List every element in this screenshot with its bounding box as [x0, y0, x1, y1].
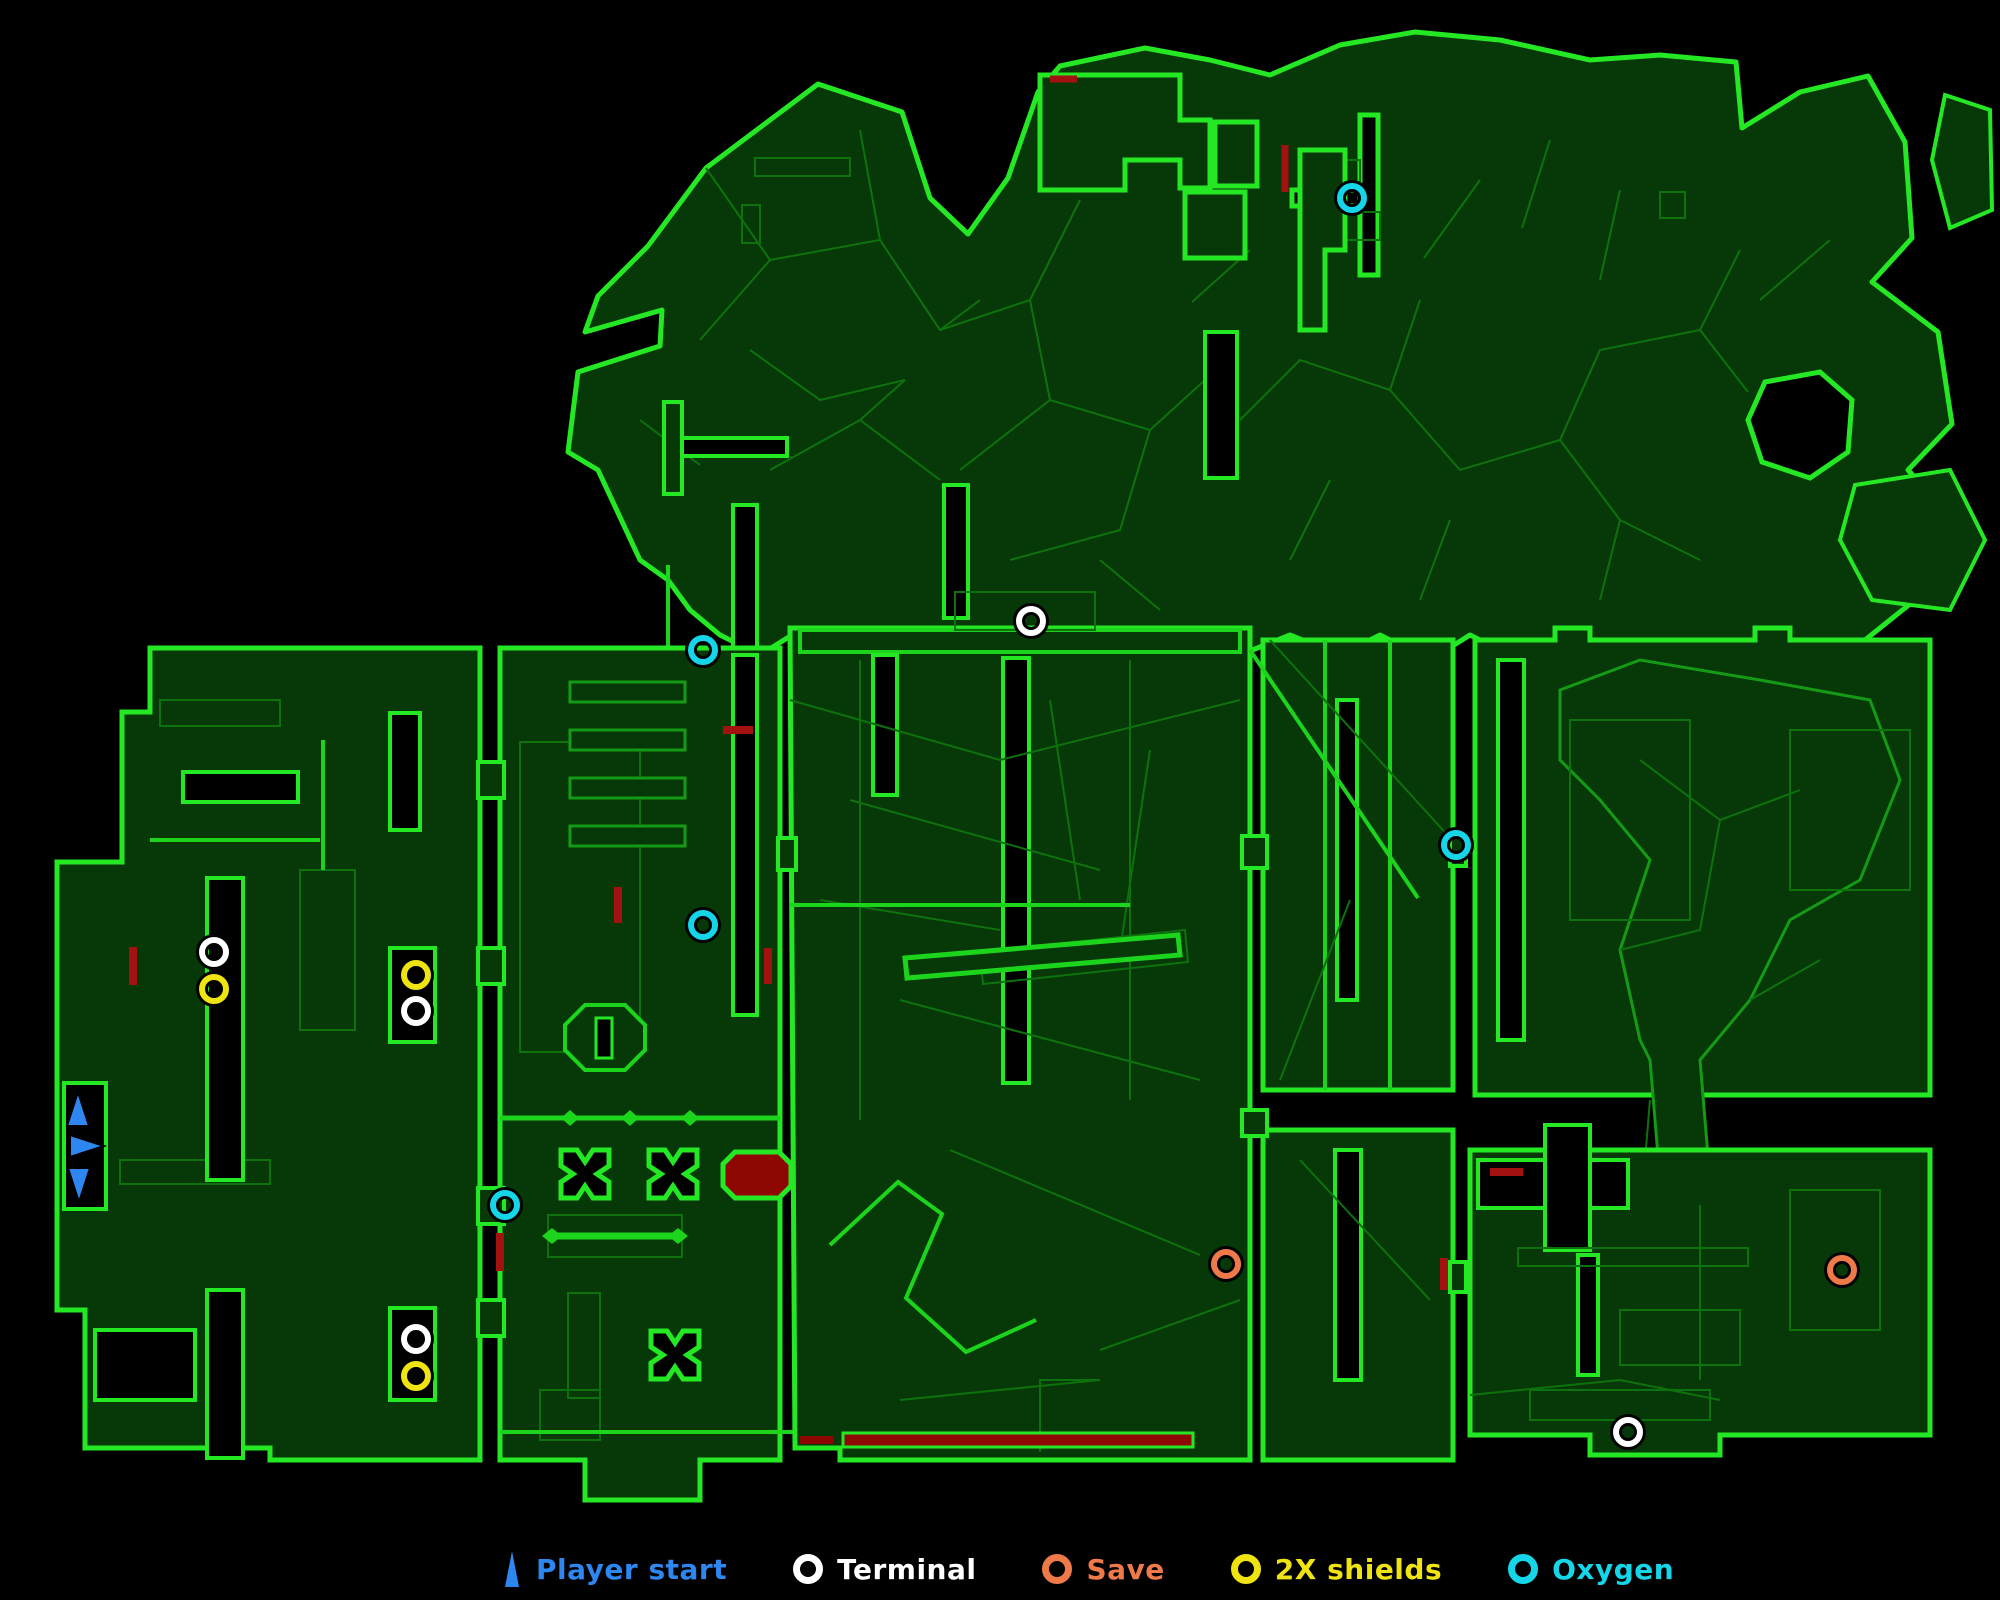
shaft — [733, 505, 757, 657]
rooms-right-bottom-block — [1444, 1125, 1930, 1455]
cave-fill — [568, 32, 1955, 700]
legend-item-player-start: Player start — [502, 1549, 727, 1589]
oxygen-icon — [1508, 1554, 1538, 1584]
shaft — [1578, 1255, 1598, 1375]
rooms-center-block — [723, 592, 1250, 1460]
cross-corridor-v — [1545, 1125, 1590, 1250]
shaft — [207, 1290, 243, 1458]
legend-item-oxygen: Oxygen — [1508, 1553, 1674, 1586]
shaft — [733, 655, 757, 1015]
rooms-left-block — [57, 648, 480, 1460]
save-icon — [1042, 1554, 1072, 1584]
cave-blob — [1932, 95, 1992, 228]
pillar — [183, 772, 298, 802]
shaft — [1335, 1150, 1361, 1380]
legend-bar: Player startTerminalSave2X shieldsOxygen… — [0, 1538, 2000, 1600]
legend-item-shields: 2X shields — [1231, 1553, 1442, 1586]
shaft — [1337, 700, 1357, 1000]
legend-label-terminal: Terminal — [837, 1553, 976, 1586]
map-canvas — [0, 0, 2000, 1540]
shaft — [1498, 660, 1524, 1040]
shaft — [1003, 658, 1029, 1083]
automap-screen: Player startTerminalSave2X shieldsOxygen… — [0, 0, 2000, 1600]
cave-pit — [1748, 372, 1852, 478]
cave-platform — [664, 402, 682, 494]
pillar — [390, 713, 420, 830]
hazard-bar — [843, 1433, 1193, 1447]
cave-chasm-slit — [1205, 332, 1237, 478]
shields-icon — [1231, 1554, 1261, 1584]
terminal-icon — [793, 1554, 823, 1584]
hazard-octagon — [723, 1152, 791, 1198]
legend-label-oxygen: Oxygen — [1552, 1553, 1674, 1586]
cave-platform — [682, 438, 787, 456]
hazard-dash — [800, 1436, 833, 1444]
cave-region — [568, 32, 1992, 700]
pillar — [95, 1330, 195, 1400]
shaft — [207, 878, 243, 1180]
legend-label-player-start: Player start — [536, 1553, 727, 1586]
player-start-icon — [502, 1549, 522, 1589]
legend-item-terminal: Terminal — [793, 1553, 976, 1586]
legend-label-shields: 2X shields — [1275, 1553, 1442, 1586]
legend-items: Player startTerminalSave2X shieldsOxygen — [502, 1549, 1740, 1589]
legend-label-save: Save — [1086, 1553, 1164, 1586]
legend-item-save: Save — [1042, 1553, 1164, 1586]
